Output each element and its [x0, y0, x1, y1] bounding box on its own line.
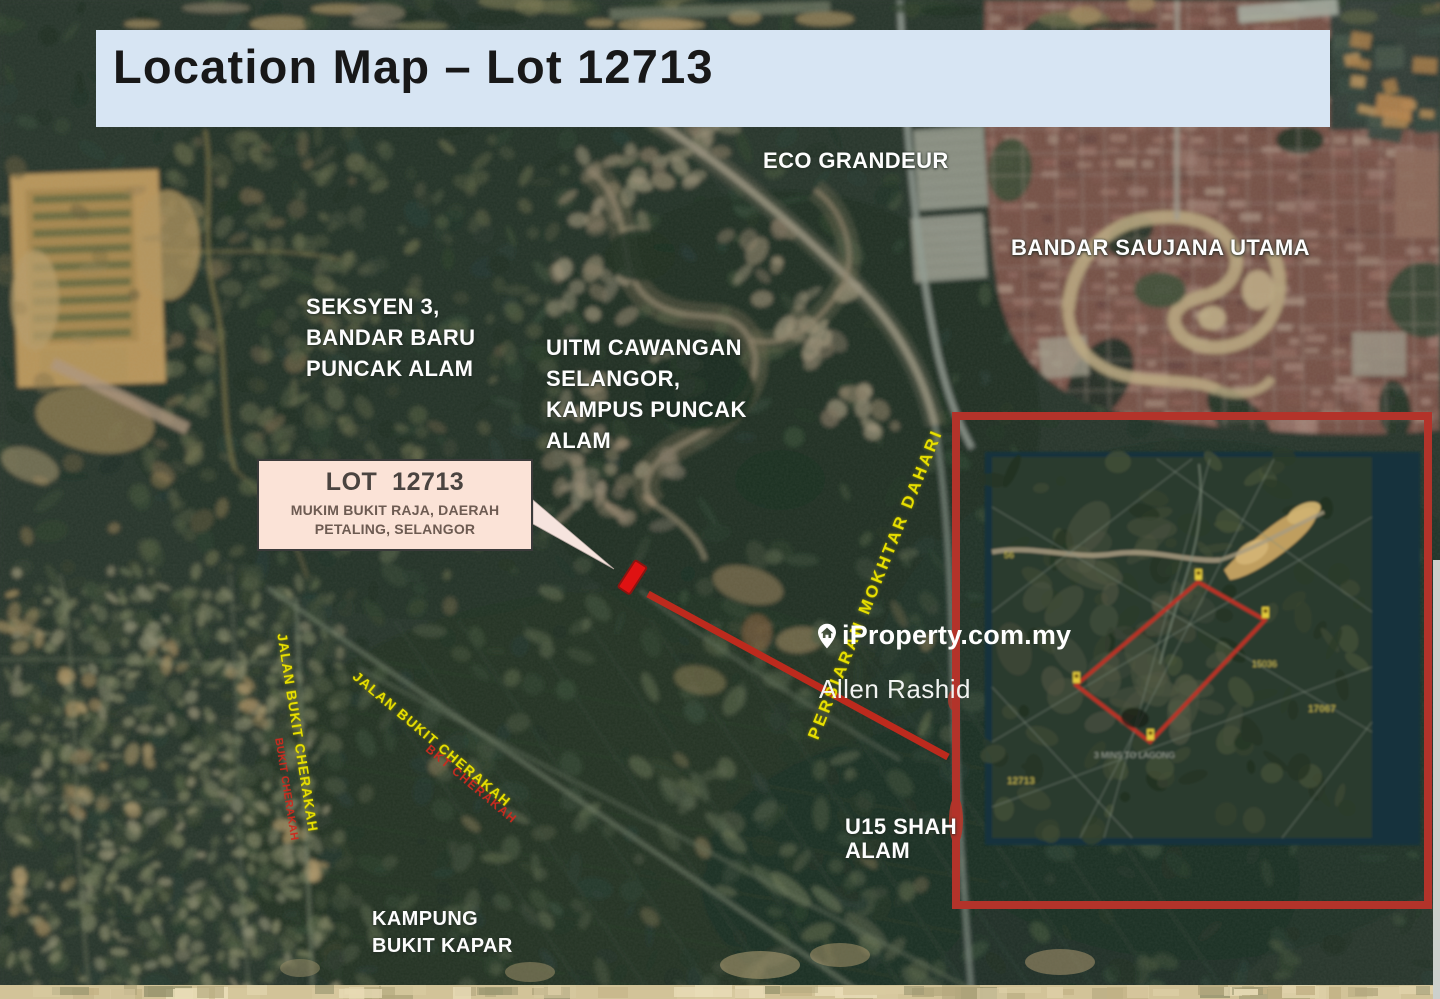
svg-text:17067: 17067: [1308, 704, 1336, 715]
svg-text:12713: 12713: [1007, 776, 1035, 787]
svg-text:15036: 15036: [1252, 659, 1277, 669]
svg-text:3 MINS TO LAGONG: 3 MINS TO LAGONG: [1094, 750, 1175, 760]
svg-text:56: 56: [1004, 550, 1014, 560]
